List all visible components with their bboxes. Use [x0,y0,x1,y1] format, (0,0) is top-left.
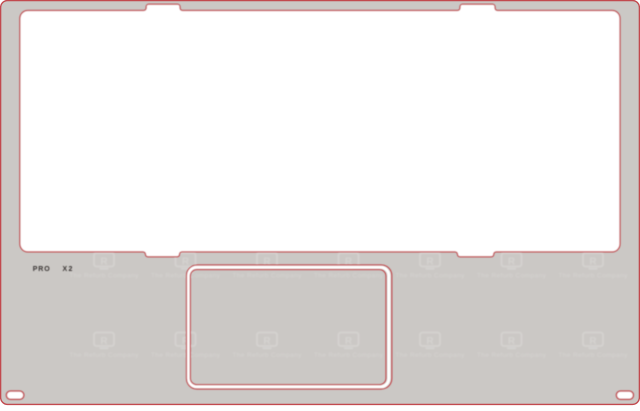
svg-text:The Refurb Company: The Refurb Company [69,352,139,359]
svg-text:The Refurb Company: The Refurb Company [395,352,465,359]
svg-text:R: R [345,336,353,347]
svg-text:R: R [508,336,516,347]
svg-text:The Refurb Company: The Refurb Company [151,352,221,359]
svg-text:The Refurb Company: The Refurb Company [232,352,302,359]
svg-text:The Refurb Company: The Refurb Company [477,352,547,359]
svg-text:R: R [589,336,597,347]
svg-text:The Refurb Company: The Refurb Company [395,273,465,280]
svg-text:The Refurb Company: The Refurb Company [69,273,139,280]
svg-text:R: R [426,336,434,347]
svg-text:The Refurb Company: The Refurb Company [558,273,628,280]
svg-text:The Refurb Company: The Refurb Company [558,352,628,359]
svg-text:R: R [182,257,190,268]
svg-text:The Refurb Company: The Refurb Company [314,352,384,359]
svg-text:The Refurb Company: The Refurb Company [477,273,547,280]
svg-text:R: R [263,336,271,347]
svg-text:The Refurb Company: The Refurb Company [232,273,302,280]
svg-text:X2: X2 [63,266,74,273]
svg-text:R: R [508,257,516,268]
svg-text:The Refurb Company: The Refurb Company [151,273,221,280]
svg-text:PRO: PRO [33,266,51,273]
svg-text:The Refurb Company: The Refurb Company [314,273,384,280]
svg-text:R: R [426,257,434,268]
svg-text:R: R [589,257,597,268]
svg-text:R: R [100,336,108,347]
svg-text:R: R [100,257,108,268]
